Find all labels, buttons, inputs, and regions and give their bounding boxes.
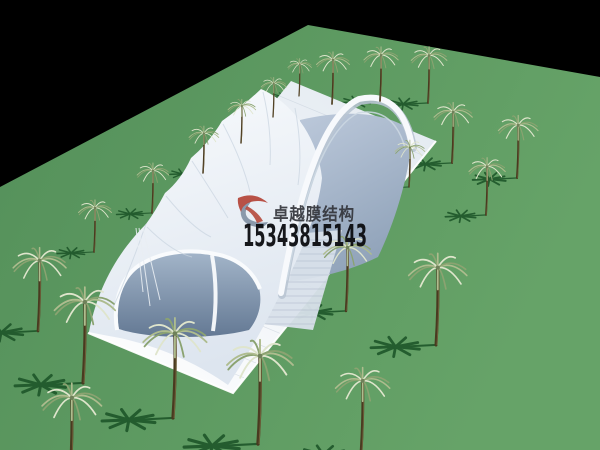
rendered-scene: 卓越膜结构 15343815143 [0, 0, 600, 450]
phone-number-text: 15343815143 [243, 219, 367, 254]
membrane-structure-render: 卓越膜结构 15343815143 [0, 0, 600, 450]
